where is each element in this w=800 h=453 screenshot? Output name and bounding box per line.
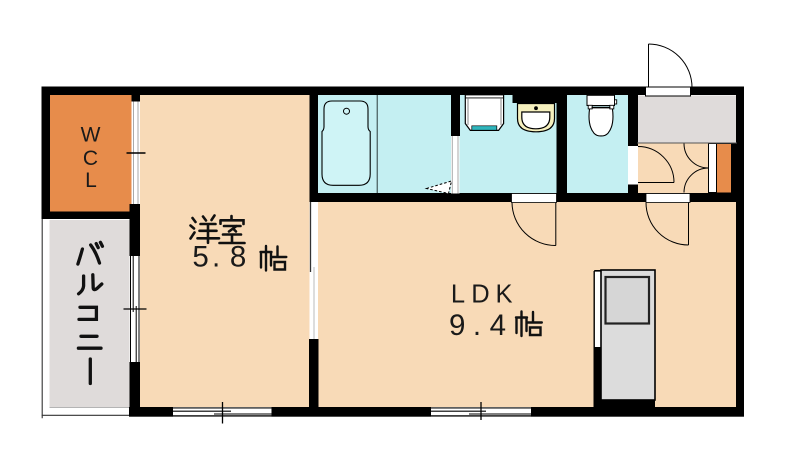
svg-text:.: .: [212, 240, 220, 273]
svg-text:.: .: [473, 309, 481, 342]
svg-text:L: L: [451, 280, 465, 308]
svg-text:W: W: [81, 124, 101, 147]
svg-text:8: 8: [230, 240, 246, 273]
svg-text:5: 5: [192, 240, 208, 273]
svg-text:K: K: [495, 280, 512, 308]
svg-text:D: D: [471, 280, 489, 308]
svg-text:C: C: [83, 147, 98, 170]
svg-text:4: 4: [490, 309, 506, 342]
svg-text:L: L: [85, 169, 97, 192]
svg-text:9: 9: [449, 309, 465, 342]
